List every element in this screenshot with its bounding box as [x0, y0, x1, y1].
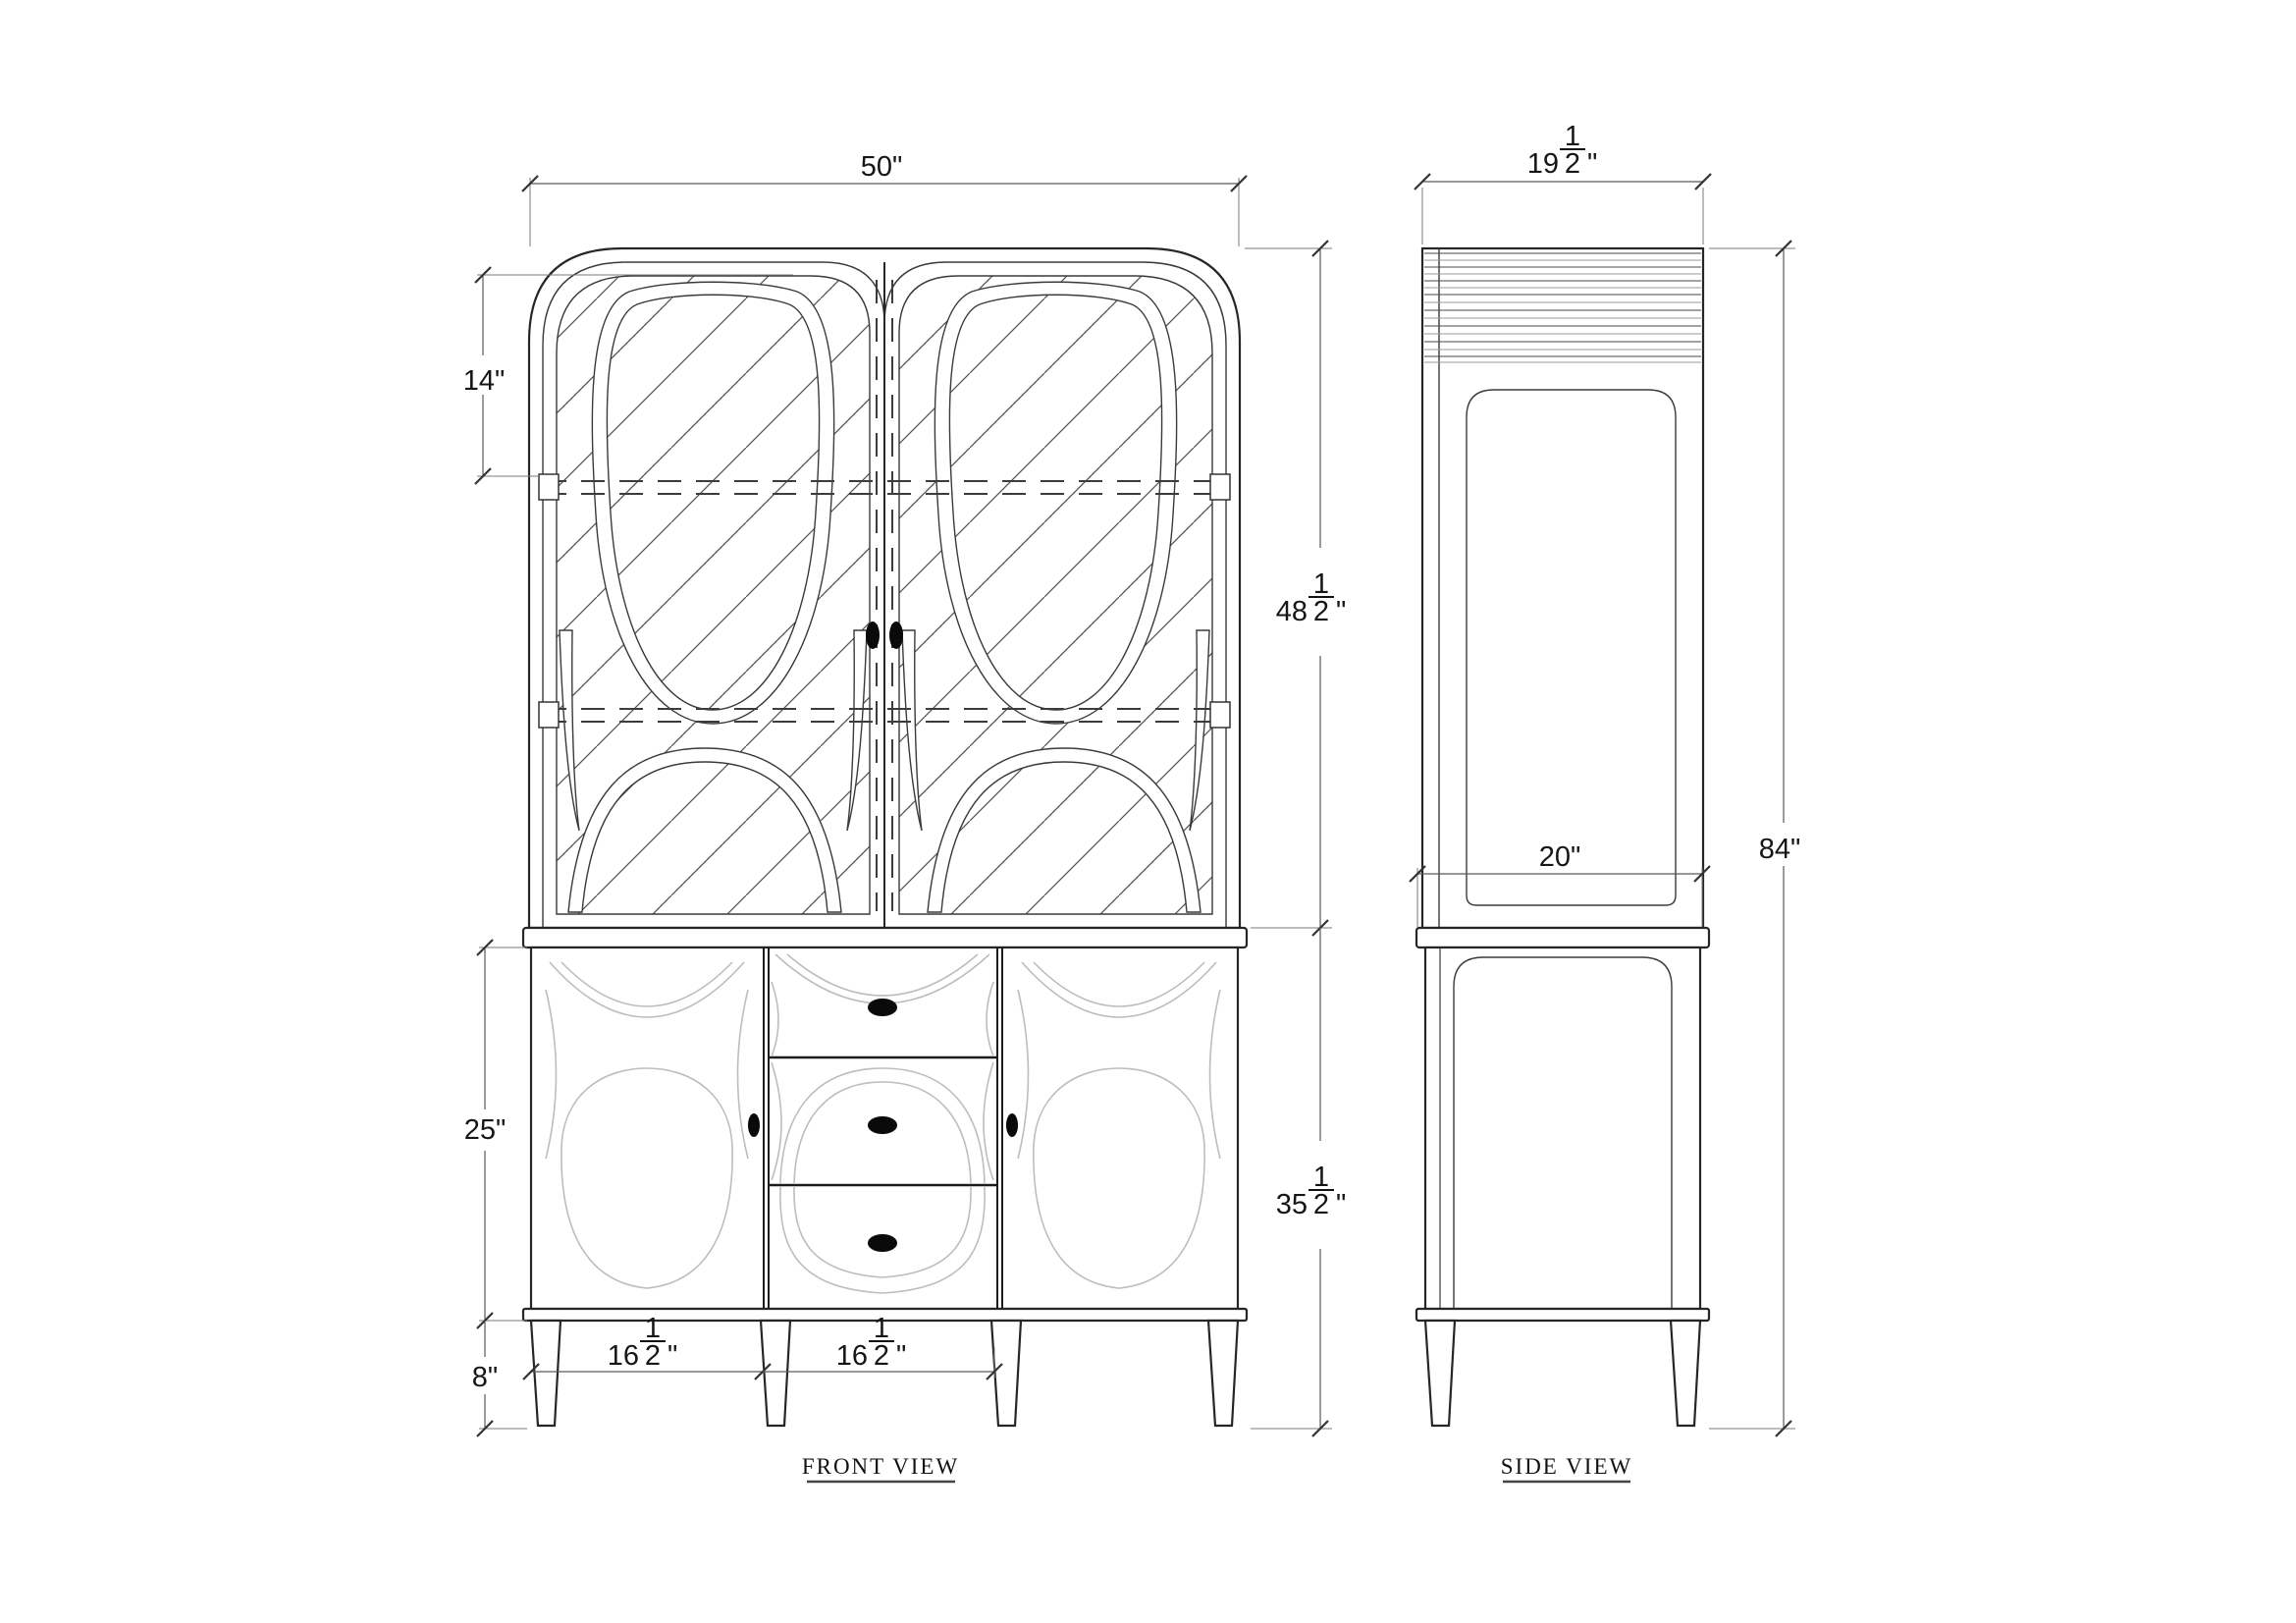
dimension-leg-height: 8": [472, 1321, 527, 1436]
side-view-title: SIDE VIEW: [1501, 1454, 1632, 1479]
dim-center-bay-den: 2: [874, 1340, 889, 1372]
dimension-total-height: 84": [1709, 241, 1800, 1436]
dimension-overall-width: 50": [522, 151, 1247, 246]
front-view-title: FRONT VIEW: [802, 1454, 959, 1479]
dim-left-bay-unit: ": [667, 1340, 677, 1372]
base-right-door-knob: [1006, 1113, 1018, 1137]
cabinet-technical-drawing: 50" 14" 48 1 2 " 35 1 2 ": [0, 0, 2296, 1623]
side-upper-outline: [1422, 248, 1703, 928]
dim-hutch-height-den: 2: [1313, 596, 1329, 627]
dim-overall-width-label: 50": [861, 151, 903, 183]
dim-shelf-height-label: 14": [463, 365, 506, 397]
dim-center-bay-unit: ": [896, 1340, 906, 1372]
dim-base-depth-label: 20": [1539, 841, 1581, 873]
view-titles: FRONT VIEW SIDE VIEW: [802, 1454, 1632, 1482]
drawer-3-knob: [868, 1234, 897, 1252]
dimension-door-height: 25": [464, 940, 527, 1328]
front-leg-1: [531, 1321, 561, 1426]
dim-base-height-den: 2: [1313, 1189, 1329, 1220]
side-base-outline: [1425, 947, 1700, 1309]
dim-center-bay-whole: 16: [836, 1340, 868, 1372]
side-bottom-board: [1416, 1309, 1709, 1321]
hutch-left-door-knob: [866, 622, 880, 649]
front-view: [523, 248, 1247, 1426]
hutch-right-door-knob: [889, 622, 903, 649]
dim-top-depth-unit: ": [1587, 148, 1597, 180]
drawer-1-knob: [868, 999, 897, 1016]
side-leg-back: [1425, 1321, 1455, 1426]
dim-base-height-unit: ": [1336, 1189, 1346, 1220]
dim-hutch-height-whole: 48: [1276, 596, 1308, 627]
side-view: [1416, 248, 1709, 1426]
side-waist-molding: [1416, 928, 1709, 947]
dim-door-height-label: 25": [464, 1114, 507, 1146]
dim-left-bay-whole: 16: [608, 1340, 639, 1372]
dim-hutch-height-unit: ": [1336, 596, 1346, 627]
waist-molding: [523, 928, 1247, 947]
front-leg-4: [1208, 1321, 1238, 1426]
dimension-top-depth: 19 1 2 ": [1415, 121, 1711, 244]
drawer-2-knob: [868, 1116, 897, 1134]
dimension-base-height: 35 1 2 ": [1251, 928, 1346, 1436]
dimension-hutch-height: 48 1 2 ": [1245, 241, 1346, 936]
dim-top-depth-den: 2: [1565, 148, 1580, 180]
dim-base-height-whole: 35: [1276, 1189, 1308, 1220]
technical-drawing-page: 50" 14" 48 1 2 " 35 1 2 ": [0, 0, 2296, 1623]
front-leg-2: [761, 1321, 790, 1426]
front-leg-3: [991, 1321, 1021, 1426]
dimension-center-bay: 16 1 2 ": [763, 1313, 1002, 1380]
side-leg-front: [1671, 1321, 1700, 1426]
dim-left-bay-den: 2: [645, 1340, 661, 1372]
dim-top-depth-whole: 19: [1527, 148, 1559, 180]
dim-leg-height-label: 8": [472, 1362, 498, 1393]
dim-total-height-label: 84": [1759, 834, 1801, 865]
base-left-door-knob: [748, 1113, 760, 1137]
